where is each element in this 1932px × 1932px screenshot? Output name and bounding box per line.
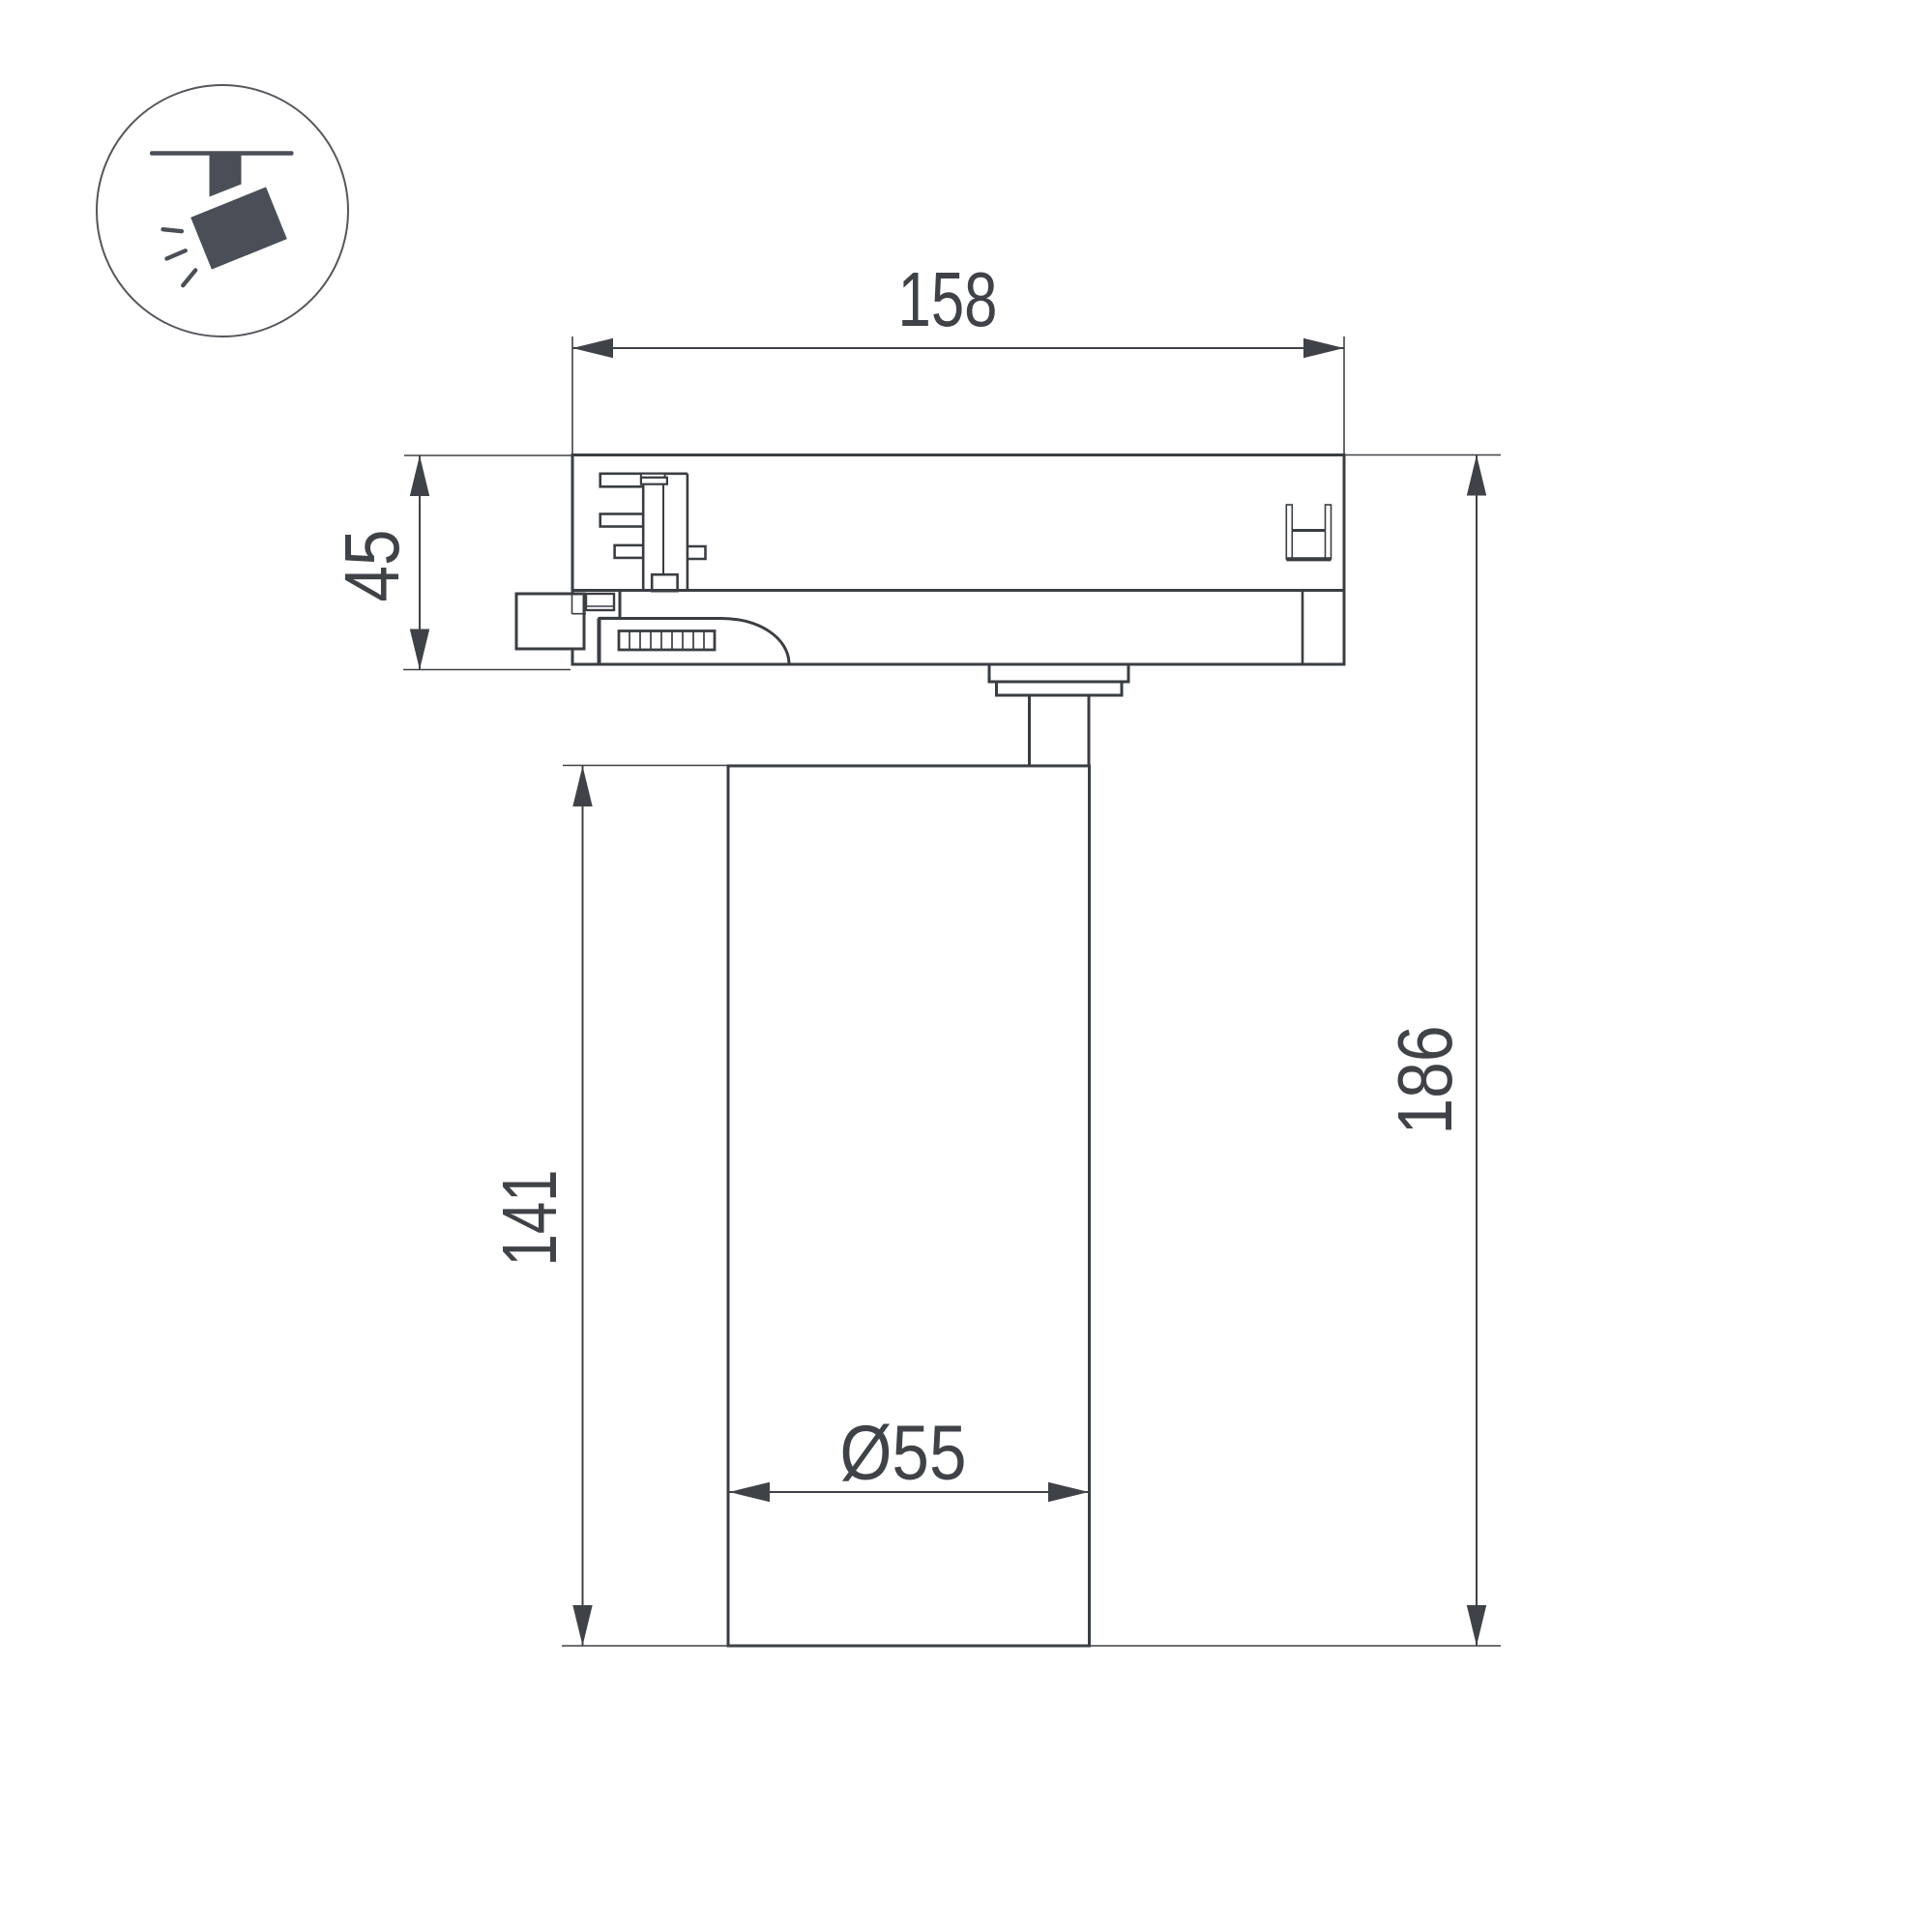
svg-text:158: 158: [898, 256, 998, 342]
svg-text:Ø55: Ø55: [840, 1410, 967, 1496]
svg-text:141: 141: [486, 1170, 572, 1267]
svg-text:45: 45: [329, 530, 415, 602]
svg-text:186: 186: [1382, 1026, 1468, 1135]
